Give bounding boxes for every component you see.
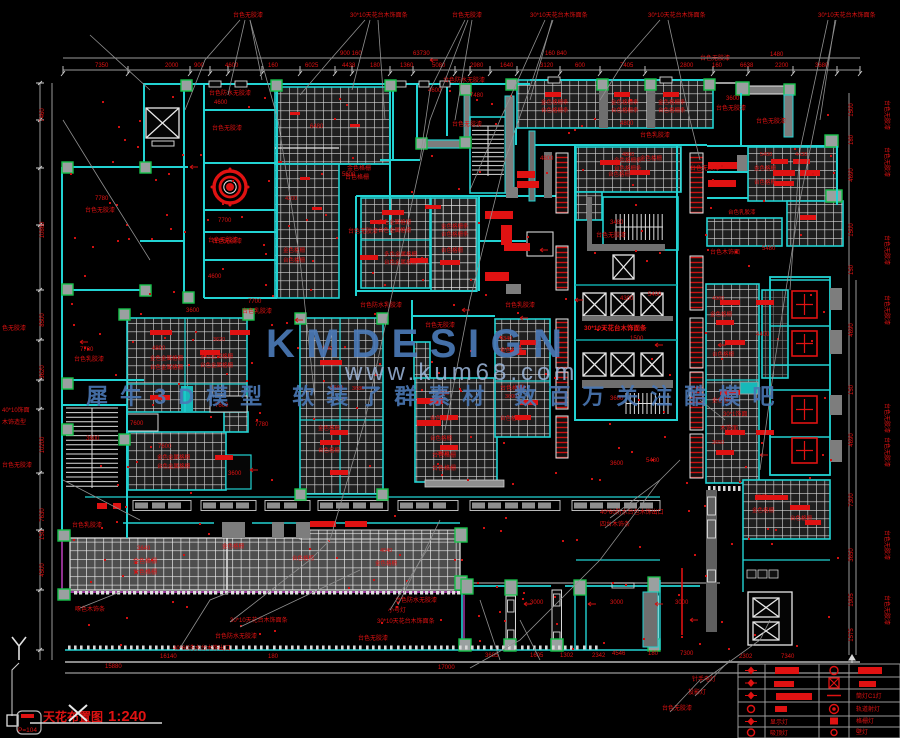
svg-text:台色无胶漆: 台色无胶漆 <box>208 236 238 244</box>
svg-text:金色格栅条: 金色格栅条 <box>611 98 639 106</box>
svg-text:www.kum68.com: www.kum68.com <box>344 359 578 386</box>
svg-text:2302: 2302 <box>739 654 753 660</box>
svg-text:180: 180 <box>648 651 659 657</box>
svg-text:吸顶灯: 吸顶灯 <box>770 729 788 737</box>
svg-text:180: 180 <box>849 134 855 145</box>
svg-text:台色无胶漆: 台色无胶漆 <box>883 147 891 177</box>
svg-text:7460: 7460 <box>40 108 46 122</box>
svg-text:台色无胶漆: 台色无胶漆 <box>452 120 482 128</box>
svg-text:台色无胶漆: 台色无胶漆 <box>883 235 891 265</box>
svg-text:1640: 1640 <box>500 63 514 69</box>
svg-text:格栅灯: 格栅灯 <box>856 717 874 725</box>
svg-text:3600: 3600 <box>228 471 242 477</box>
svg-text:7600: 7600 <box>158 444 172 450</box>
svg-text:台色无胶漆: 台色无胶漆 <box>85 206 115 214</box>
svg-text:150: 150 <box>40 529 46 540</box>
svg-text:4438: 4438 <box>342 63 356 69</box>
svg-text:台色无胶漆: 台色无胶漆 <box>358 634 388 642</box>
svg-text:金色金属格栅: 金色金属格栅 <box>200 352 234 360</box>
svg-text:7350: 7350 <box>95 63 109 69</box>
svg-text:6638: 6638 <box>740 63 754 69</box>
svg-text:台色无胶漆: 台色无胶漆 <box>716 104 746 112</box>
svg-text:台色格栅: 台色格栅 <box>283 256 306 264</box>
svg-text:台色无胶漆: 台色无胶漆 <box>883 100 891 130</box>
svg-text:6025: 6025 <box>305 63 319 69</box>
svg-text:3650: 3650 <box>712 440 724 446</box>
svg-text:7780: 7780 <box>95 196 109 202</box>
svg-text:台色金属格栅: 台色金属格栅 <box>384 258 418 266</box>
svg-text:1302: 1302 <box>560 653 574 659</box>
svg-text:5480: 5480 <box>646 458 660 464</box>
svg-text:金色格栅: 金色格栅 <box>710 310 733 318</box>
svg-text:台色防水无胶漆: 台色防水无胶漆 <box>443 76 485 84</box>
svg-text:5600: 5600 <box>342 172 356 178</box>
svg-text:台色无胶漆: 台色无胶漆 <box>452 11 482 19</box>
svg-text:台色防水无胶漆: 台色防水无胶漆 <box>395 596 437 604</box>
svg-text:台色乳胶漆: 台色乳胶漆 <box>640 131 670 139</box>
svg-text:4800: 4800 <box>152 346 166 352</box>
svg-text:台色格栅: 台色格栅 <box>712 350 735 358</box>
svg-text:金色格栅条: 金色格栅条 <box>541 98 569 106</box>
svg-text:金色格栅: 金色格栅 <box>375 559 398 567</box>
svg-text:3000: 3000 <box>610 600 624 606</box>
svg-text:台色格栅: 台色格栅 <box>318 446 341 454</box>
svg-text:4640: 4640 <box>380 548 392 554</box>
svg-text:四台木饰条: 四台木饰条 <box>600 520 630 528</box>
svg-text:台色格栅: 台色格栅 <box>430 434 453 442</box>
svg-text:台色格栅条: 台色格栅条 <box>441 230 469 238</box>
svg-text:17000: 17000 <box>438 665 455 671</box>
svg-text:3620: 3620 <box>40 365 46 379</box>
svg-text:台色无胶漆: 台色无胶漆 <box>883 530 891 560</box>
svg-text:40*10饰面: 40*10饰面 <box>2 406 30 414</box>
svg-text:7780: 7780 <box>80 347 94 353</box>
svg-text:3600: 3600 <box>86 436 100 442</box>
svg-text:台色无胶漆: 台色无胶漆 <box>883 437 891 467</box>
svg-text:壁灯: 壁灯 <box>856 728 868 736</box>
svg-text:4800: 4800 <box>540 156 554 162</box>
svg-text:针手电灯: 针手电灯 <box>692 675 716 683</box>
svg-text:犀牛3D模型 软装了群素材 数百万关注酷模吧: 犀牛3D模型 软装了群素材 数百万关注酷模吧 <box>86 384 786 409</box>
svg-text:1500: 1500 <box>630 336 644 342</box>
svg-text:显示灯: 显示灯 <box>770 718 788 726</box>
svg-text:6480: 6480 <box>310 124 324 130</box>
svg-text:180: 180 <box>268 654 279 660</box>
svg-text:台色乳胶漆: 台色乳胶漆 <box>74 355 104 363</box>
svg-text:P=104: P=104 <box>18 727 37 734</box>
svg-text:5400: 5400 <box>760 152 772 158</box>
svg-text:15880: 15880 <box>105 664 122 670</box>
svg-text:160 840: 160 840 <box>545 51 567 57</box>
svg-text:台色格栅: 台色格栅 <box>441 246 464 254</box>
svg-text:台色防水乳胶漆: 台色防水乳胶漆 <box>360 301 402 309</box>
svg-text:金色格栅: 金色格栅 <box>347 164 371 172</box>
svg-text:台色无胶漆: 台色无胶漆 <box>883 595 891 625</box>
svg-text:600: 600 <box>575 63 586 69</box>
svg-text:金色格栅: 金色格栅 <box>430 414 453 422</box>
svg-text:台色金属格栅: 台色金属格栅 <box>200 361 234 369</box>
svg-text:台色无胶漆: 台色无胶漆 <box>212 124 242 132</box>
svg-text:10860: 10860 <box>40 221 46 238</box>
svg-text:台色格栅: 台色格栅 <box>133 568 157 576</box>
svg-text:台色无胶漆: 台色无胶漆 <box>662 704 692 712</box>
svg-text:63730: 63730 <box>413 51 430 57</box>
svg-text:2000: 2000 <box>165 63 179 69</box>
svg-text:7780: 7780 <box>255 422 269 428</box>
svg-text:台色防水无胶漆: 台色防水无胶漆 <box>209 89 251 97</box>
svg-text:30*10天花台木饰面条: 30*10天花台木饰面条 <box>584 323 647 332</box>
svg-text:30*10天花台木饰面条: 30*10天花台木饰面条 <box>350 11 408 19</box>
svg-text:多色金属格栅: 多色金属格栅 <box>378 218 412 226</box>
svg-text:16140: 16140 <box>160 654 177 660</box>
svg-text:4600: 4600 <box>208 274 222 280</box>
svg-text:7630: 7630 <box>40 508 46 522</box>
svg-text:台色乳胶漆: 台色乳胶漆 <box>242 307 272 315</box>
svg-text:8500: 8500 <box>40 313 46 327</box>
svg-text:3000: 3000 <box>675 600 689 606</box>
svg-text:2200: 2200 <box>775 63 789 69</box>
svg-text:4690: 4690 <box>849 323 855 337</box>
svg-text:7600: 7600 <box>130 421 144 427</box>
svg-text:台色金属格栅: 台色金属格栅 <box>150 363 184 371</box>
svg-text:金色格栅: 金色格栅 <box>283 246 306 254</box>
svg-text:金色格栅: 金色格栅 <box>222 542 245 550</box>
svg-text:2980: 2980 <box>470 63 484 69</box>
svg-text:台色格栅条: 台色格栅条 <box>611 106 639 114</box>
svg-text:7300: 7300 <box>680 651 694 657</box>
svg-text:金色格栅: 金色格栅 <box>133 557 157 565</box>
svg-text:金色金属格栅: 金色金属格栅 <box>150 354 184 362</box>
svg-text:金色格栅: 金色格栅 <box>754 164 777 172</box>
svg-text:小号灯: 小号灯 <box>388 606 406 614</box>
svg-text:4600: 4600 <box>214 100 228 106</box>
svg-text:台色无胶漆: 台色无胶漆 <box>233 11 263 19</box>
svg-text:2800: 2800 <box>680 63 694 69</box>
svg-text:4800: 4800 <box>620 121 634 127</box>
svg-text:4640: 4640 <box>755 494 767 500</box>
svg-text:7700: 7700 <box>248 299 262 305</box>
svg-text:3600: 3600 <box>610 461 624 467</box>
svg-text:7340: 7340 <box>781 654 795 660</box>
svg-text:台色乳胶漆: 台色乳胶漆 <box>728 208 756 216</box>
svg-text:4400: 4400 <box>756 332 770 338</box>
svg-text:30*10天花台木饰面条: 30*10天花台木饰面条 <box>230 616 288 624</box>
svg-text:台色格栅: 台色格栅 <box>790 514 813 522</box>
svg-text:3650: 3650 <box>849 548 855 562</box>
svg-text:1500: 1500 <box>849 223 855 237</box>
svg-text:150: 150 <box>849 384 855 395</box>
svg-text:台色防水无胶漆: 台色防水无胶漆 <box>215 632 257 640</box>
svg-text:3640: 3640 <box>137 546 151 552</box>
svg-text:木饰面: 木饰面 <box>720 424 738 432</box>
svg-text:2342: 2342 <box>592 653 606 659</box>
svg-text:4690: 4690 <box>849 433 855 447</box>
svg-text:台色格栅: 台色格栅 <box>608 170 631 178</box>
svg-text:4360: 4360 <box>712 296 724 302</box>
svg-text:1500: 1500 <box>849 103 855 117</box>
svg-text:轨道射灯: 轨道射灯 <box>856 705 880 713</box>
svg-text:150: 150 <box>849 264 855 275</box>
svg-text:160: 160 <box>712 63 723 69</box>
svg-text:台色无胶漆: 台色无胶漆 <box>883 403 891 433</box>
svg-text:30*10天花台木饰面条: 30*10天花台木饰面条 <box>648 11 706 19</box>
svg-text:3480: 3480 <box>610 220 624 226</box>
svg-text:3600: 3600 <box>186 308 200 314</box>
svg-text:160: 160 <box>268 63 279 69</box>
svg-text:900 160: 900 160 <box>340 51 362 57</box>
svg-text:4300: 4300 <box>620 296 634 302</box>
svg-text:3600: 3600 <box>437 451 449 457</box>
svg-text:金色格栅条: 金色格栅条 <box>658 98 686 106</box>
svg-text:40*60防水台色木饰出口: 40*60防水台色木饰出口 <box>600 508 664 516</box>
svg-text:4430: 4430 <box>795 152 807 158</box>
svg-text:30*10天花台木饰面条: 30*10天花台木饰面条 <box>818 11 876 19</box>
svg-text:台色无胶漆: 台色无胶漆 <box>883 295 891 325</box>
svg-text:4800: 4800 <box>622 152 634 158</box>
svg-text:4600: 4600 <box>225 63 239 69</box>
svg-text:金色格栅: 金色格栅 <box>752 506 775 514</box>
svg-text:台色无胶漆: 台色无胶漆 <box>756 117 786 125</box>
svg-text:7480: 7480 <box>470 93 484 99</box>
svg-text:5080: 5080 <box>432 63 446 69</box>
svg-text:台色金属格栅: 台色金属格栅 <box>157 462 191 470</box>
svg-text:台色无胶漆: 台色无胶漆 <box>596 231 626 239</box>
svg-text:5480: 5480 <box>762 246 776 252</box>
svg-text:色无胶漆: 色无胶漆 <box>2 324 26 332</box>
svg-text:台色格栅: 台色格栅 <box>292 554 315 562</box>
svg-text:台色格栅条: 台色格栅条 <box>658 106 686 114</box>
svg-text:台色木饰面: 台色木饰面 <box>710 248 740 256</box>
svg-text:台色格栅条: 台色格栅条 <box>541 106 569 114</box>
svg-text:台色乳胶漆: 台色乳胶漆 <box>505 301 535 309</box>
svg-text:30*10天花台木饰面条: 30*10天花台木饰面条 <box>530 11 588 19</box>
svg-text:台色无胶漆: 台色无胶漆 <box>348 227 378 235</box>
svg-text:10200: 10200 <box>40 436 46 453</box>
svg-text:1575: 1575 <box>849 628 855 642</box>
svg-text:台色格栅: 台色格栅 <box>432 464 456 472</box>
svg-text:台色无胶漆: 台色无胶漆 <box>690 164 720 172</box>
svg-text:投影灯: 投影灯 <box>688 688 706 696</box>
svg-text:筒灯C1灯: 筒灯C1灯 <box>856 692 882 700</box>
svg-text:7300: 7300 <box>849 493 855 507</box>
svg-text:啄色木饰条: 啄色木饰条 <box>75 605 105 613</box>
svg-text:180: 180 <box>370 63 381 69</box>
svg-text:1360: 1360 <box>400 63 414 69</box>
svg-text:3000: 3000 <box>530 600 544 606</box>
svg-text:台色乳胶漆: 台色乳胶漆 <box>72 521 102 529</box>
svg-text:金色格栅: 金色格栅 <box>640 154 663 162</box>
svg-text:3620: 3620 <box>213 337 225 343</box>
svg-text:4500: 4500 <box>40 563 46 577</box>
svg-text:30*10天花台木饰面条: 30*10天花台木饰面条 <box>377 617 435 625</box>
svg-text:7700: 7700 <box>218 218 232 224</box>
svg-text:金色格栅: 金色格栅 <box>318 424 341 432</box>
svg-text:4546: 4546 <box>612 651 626 657</box>
svg-text:木饰造型: 木饰造型 <box>2 418 26 426</box>
svg-text:5400: 5400 <box>648 292 662 298</box>
svg-text:3600: 3600 <box>726 96 740 102</box>
svg-text:金色格栅条: 金色格栅条 <box>441 222 469 230</box>
svg-text:台色无胶漆: 台色无胶漆 <box>2 461 32 469</box>
svg-text:金色金属格栅: 金色金属格栅 <box>157 453 191 461</box>
svg-text:3120: 3120 <box>540 63 554 69</box>
svg-text:1480: 1480 <box>770 52 784 58</box>
svg-text:4690: 4690 <box>849 168 855 182</box>
svg-text:30*1饰面: 30*1饰面 <box>723 410 747 418</box>
svg-text:台色格栅: 台色格栅 <box>754 178 777 186</box>
svg-text:1905: 1905 <box>849 593 855 607</box>
svg-text:台色格栅条: 台色格栅条 <box>614 164 642 172</box>
svg-text:台色格栅: 台色格栅 <box>500 414 523 422</box>
